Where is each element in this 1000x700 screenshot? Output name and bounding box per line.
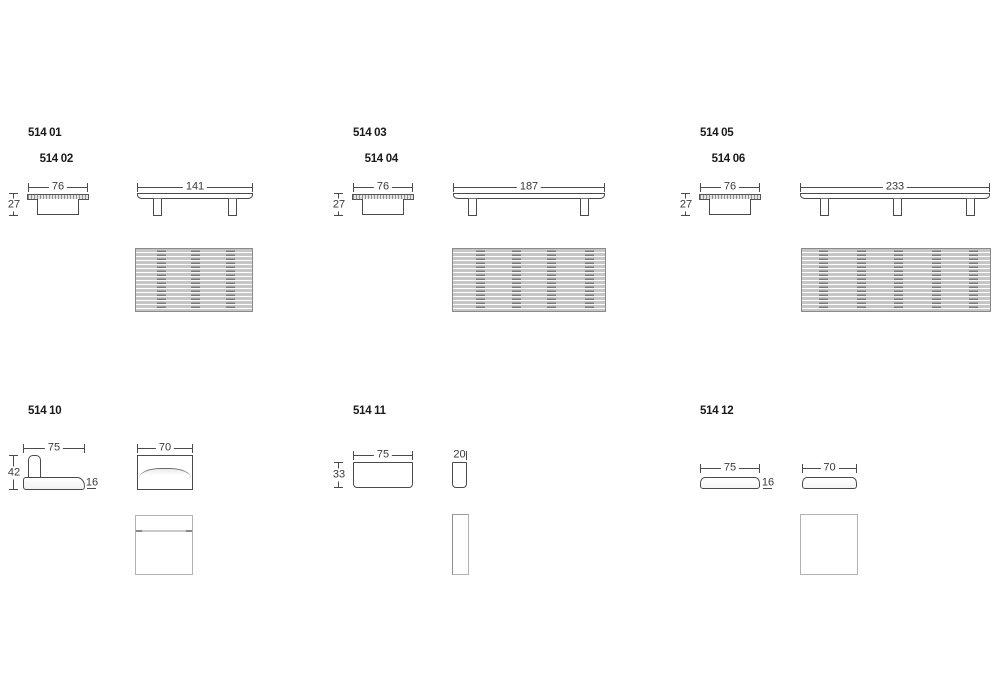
- product-code: 514 10: [28, 405, 61, 417]
- side-width-dimension: 76: [28, 181, 88, 193]
- side-width-dimension: 76: [353, 181, 413, 193]
- height-dimension: 33: [333, 462, 345, 488]
- bench-leg: [820, 198, 829, 216]
- dimension-value: 75: [374, 449, 392, 461]
- width-dimension: 75: [353, 449, 413, 461]
- dimension-value: 70: [156, 442, 174, 454]
- product-label-514-03-04: 514 03 514 04: [353, 127, 398, 166]
- product-label-514-10: 514 10: [28, 405, 61, 418]
- side-width-dimension: 76: [700, 181, 760, 193]
- slat-fixing-marks: [894, 250, 903, 310]
- bench-side-frame: [362, 199, 404, 215]
- left-width-dimension: 75: [700, 462, 760, 474]
- cushion-height-dimension: 16: [762, 477, 774, 489]
- product-code: 514 12: [700, 405, 733, 417]
- depth-dimension: 20: [452, 449, 467, 461]
- dimension-value: 16: [761, 477, 775, 490]
- slat-fixing-marks: [819, 250, 828, 310]
- bench-leg: [228, 198, 237, 216]
- slat-fixing-marks: [226, 250, 235, 310]
- slat-fixing-marks: [857, 250, 866, 310]
- product-label-514-11: 514 11: [353, 405, 386, 418]
- dimension-value: 75: [45, 442, 63, 454]
- slat-fixing-marks: [969, 250, 978, 310]
- total-height-dimension: 42: [8, 455, 20, 490]
- dimension-value: 27: [332, 198, 346, 211]
- front-width-dimension: 233: [800, 181, 990, 193]
- cushion-plan-view: [800, 514, 858, 575]
- dimension-value: 16: [85, 477, 99, 490]
- cushion-front-view: [700, 477, 760, 489]
- pouf-side-view: [452, 462, 467, 488]
- dimension-value: 76: [721, 181, 739, 193]
- pouf-front-view: [353, 462, 413, 488]
- dimension-value: 27: [679, 198, 693, 211]
- dimension-value: 187: [517, 181, 541, 193]
- bench-leg: [893, 198, 902, 216]
- product-code: 514 06: [712, 153, 745, 165]
- bench-plan-view: [135, 248, 253, 312]
- bench-plan-view: [452, 248, 606, 312]
- dimension-value: 233: [883, 181, 907, 193]
- chaise-plan-view: [135, 515, 193, 575]
- bench-leg: [153, 198, 162, 216]
- spec-sheet: 514 01 514 02 76 27 141 514 03 514 04 76…: [0, 0, 1000, 700]
- side-height-dimension: 27: [680, 193, 692, 216]
- product-label-514-12: 514 12: [700, 405, 733, 418]
- side-height-dimension: 27: [8, 193, 20, 216]
- chaise-seat-side: [23, 477, 85, 490]
- product-label-514-01-02: 514 01 514 02: [28, 127, 73, 166]
- dimension-value: 27: [7, 198, 21, 211]
- slat-fixing-marks: [585, 250, 594, 310]
- product-code: 514 01: [28, 127, 61, 139]
- product-code: 514 05: [700, 127, 733, 139]
- seat-width-dimension: 75: [23, 442, 85, 454]
- dimension-value: 141: [183, 181, 207, 193]
- slat-fixing-marks: [476, 250, 485, 310]
- slat-fixing-marks: [191, 250, 200, 310]
- cushion-height-dimension: 16: [86, 477, 98, 489]
- dimension-value: 70: [820, 462, 838, 474]
- product-code: 514 02: [40, 153, 73, 165]
- slat-fixing-marks: [512, 250, 521, 310]
- dimension-value: 33: [332, 469, 346, 482]
- front-width-dimension: 187: [453, 181, 605, 193]
- cushion-seam-line: [139, 468, 191, 478]
- right-width-dimension: 70: [802, 462, 857, 474]
- front-width-dimension: 141: [137, 181, 253, 193]
- cushion-side-view: [802, 477, 857, 489]
- dimension-value: 42: [7, 466, 21, 479]
- chaise-backrest-side: [28, 455, 41, 479]
- front-width-dimension: 70: [137, 442, 193, 454]
- bench-plan-view: [801, 248, 991, 312]
- bench-leg: [468, 198, 477, 216]
- slat-fixing-marks: [932, 250, 941, 310]
- backrest-plan-line: [136, 530, 192, 532]
- slat-fixing-marks: [157, 250, 166, 310]
- bench-leg: [966, 198, 975, 216]
- product-code: 514 11: [353, 405, 386, 417]
- dimension-value: 75: [721, 462, 739, 474]
- bench-leg: [580, 198, 589, 216]
- bench-side-frame: [709, 199, 751, 215]
- chaise-front-view: [137, 455, 193, 490]
- product-label-514-05-06: 514 05 514 06: [700, 127, 745, 166]
- dimension-value: 76: [49, 181, 67, 193]
- product-code: 514 04: [365, 153, 398, 165]
- side-height-dimension: 27: [333, 193, 345, 216]
- bench-side-frame: [37, 199, 79, 215]
- dimension-value: 20: [450, 449, 468, 461]
- slat-fixing-marks: [547, 250, 556, 310]
- dimension-value: 76: [374, 181, 392, 193]
- pouf-plan-view: [452, 514, 469, 575]
- product-code: 514 03: [353, 127, 386, 139]
